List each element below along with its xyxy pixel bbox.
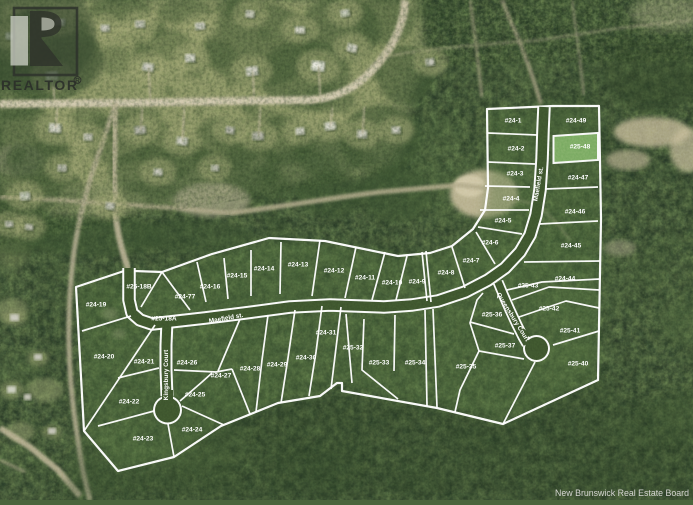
svg-text:#25-18B: #25-18B (126, 283, 152, 290)
svg-text:Kingsbury Court: Kingsbury Court (163, 349, 170, 400)
svg-text:#24-49: #24-49 (566, 117, 587, 124)
svg-text:#24-10: #24-10 (382, 279, 403, 286)
svg-text:#25-48: #25-48 (570, 143, 591, 150)
svg-text:#25-18A: #25-18A (151, 315, 177, 322)
svg-text:#24-26: #24-26 (177, 359, 198, 366)
svg-text:#24-31: #24-31 (316, 329, 337, 336)
svg-text:#25-43: #25-43 (518, 282, 539, 289)
svg-text:R: R (75, 77, 80, 84)
svg-text:#25-37: #25-37 (495, 342, 516, 349)
svg-text:#25-33: #25-33 (369, 359, 390, 366)
svg-text:#24-24: #24-24 (182, 426, 203, 433)
svg-text:#24-19: #24-19 (86, 301, 107, 308)
svg-text:#24-3: #24-3 (507, 170, 524, 177)
svg-text:#25-34: #25-34 (405, 359, 426, 366)
svg-text:#24-13: #24-13 (288, 261, 309, 268)
svg-text:#25-41: #25-41 (560, 327, 581, 334)
svg-text:#24-2: #24-2 (508, 145, 525, 152)
svg-text:#25-40: #25-40 (568, 360, 589, 367)
svg-text:#24-44: #24-44 (555, 275, 576, 282)
svg-text:#24-47: #24-47 (568, 174, 589, 181)
svg-text:#24-4: #24-4 (503, 195, 520, 202)
svg-text:#24-23: #24-23 (133, 435, 154, 442)
svg-text:#24-14: #24-14 (254, 265, 275, 272)
svg-text:#24-9: #24-9 (409, 278, 426, 285)
svg-text:#24-21: #24-21 (134, 358, 155, 365)
svg-text:#24-8: #24-8 (438, 269, 455, 276)
svg-text:#24-45: #24-45 (561, 242, 582, 249)
svg-text:#25-42: #25-42 (539, 305, 560, 312)
svg-text:New Brunswick Real Estate Boar: New Brunswick Real Estate Board (555, 488, 689, 498)
svg-text:#25-36: #25-36 (482, 311, 503, 318)
svg-text:#24-16: #24-16 (200, 283, 221, 290)
svg-text:#24-5: #24-5 (495, 217, 512, 224)
svg-text:#24-7: #24-7 (463, 257, 480, 264)
svg-text:#24-6: #24-6 (482, 239, 499, 246)
svg-text:#24-30: #24-30 (296, 354, 317, 361)
svg-text:#24-77: #24-77 (175, 293, 196, 300)
svg-text:#24-15: #24-15 (227, 272, 248, 279)
svg-text:#24-22: #24-22 (119, 398, 140, 405)
svg-text:#25-35: #25-35 (456, 363, 477, 370)
svg-text:#24-29: #24-29 (267, 361, 288, 368)
svg-text:#24-28: #24-28 (240, 365, 261, 372)
svg-text:#24-46: #24-46 (565, 208, 586, 215)
svg-text:#24-20: #24-20 (94, 353, 115, 360)
svg-text:REALTOR: REALTOR (1, 77, 79, 93)
svg-text:#24-12: #24-12 (324, 267, 345, 274)
svg-text:#24-25: #24-25 (185, 391, 206, 398)
svg-text:#24-11: #24-11 (355, 274, 376, 281)
svg-text:#25-32: #25-32 (343, 344, 364, 351)
svg-text:#24-1: #24-1 (505, 117, 522, 124)
svg-text:#24-27: #24-27 (211, 372, 232, 379)
